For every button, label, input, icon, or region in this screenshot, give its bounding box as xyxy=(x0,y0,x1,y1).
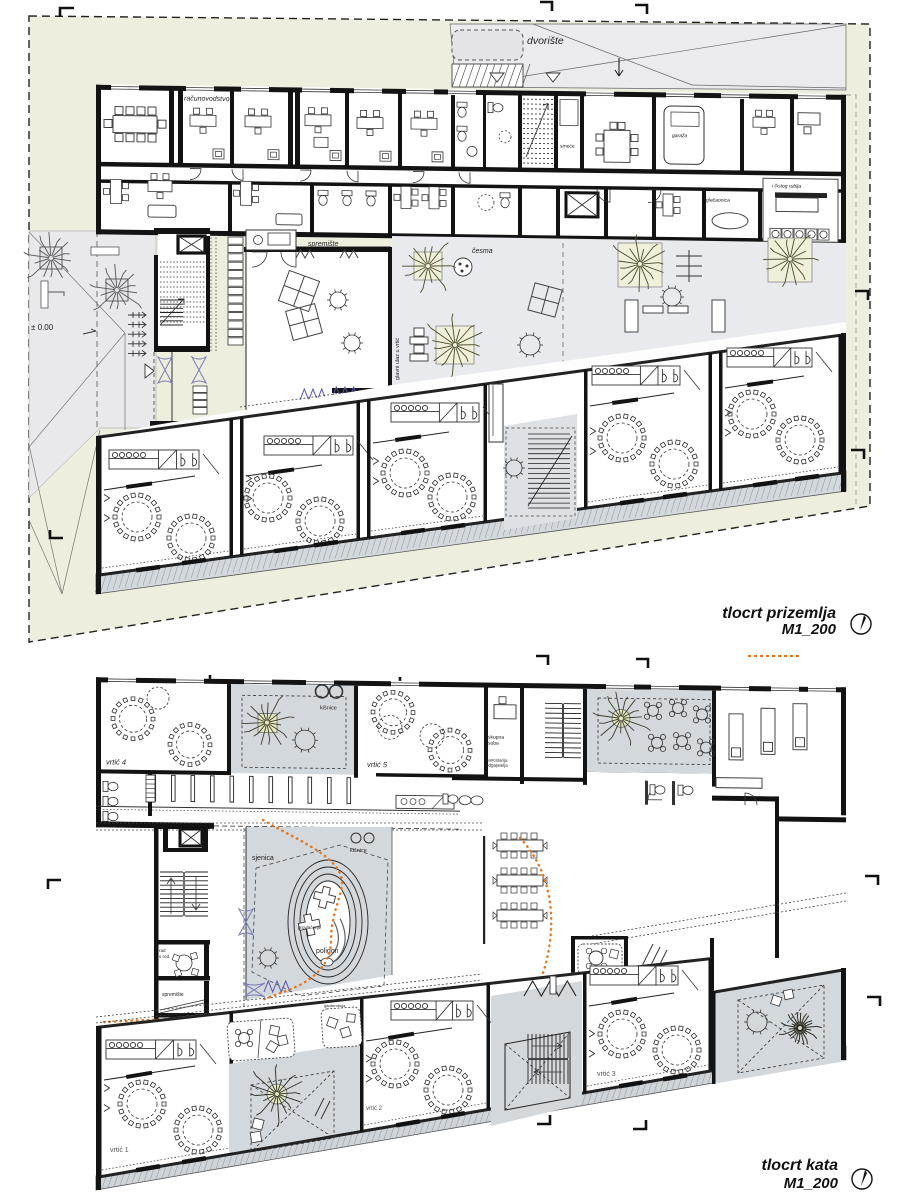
svg-text:garaža: garaža xyxy=(672,133,688,139)
svg-text:± 0.00: ± 0.00 xyxy=(31,323,54,332)
svg-text:poligon: poligon xyxy=(316,948,339,955)
svg-text:tlocrt kata: tlocrt kata xyxy=(762,1157,839,1174)
svg-text:odgajatelja: odgajatelja xyxy=(486,763,508,768)
svg-text:tlocrt prizemlja: tlocrt prizemlja xyxy=(722,605,836,622)
svg-text:spremište: spremište xyxy=(162,992,184,998)
svg-text:smeće: smeće xyxy=(560,144,575,150)
svg-text:vrtić 2: vrtić 2 xyxy=(366,1106,383,1112)
svg-text:kišnice: kišnice xyxy=(320,705,337,711)
svg-text:vrtić 1: vrtić 1 xyxy=(110,1147,129,1154)
svg-text:M1_200: M1_200 xyxy=(782,621,837,638)
svg-text:sjenica: sjenica xyxy=(252,855,274,862)
svg-text:M1_200: M1_200 xyxy=(784,1175,839,1192)
svg-text:rad: rad xyxy=(159,948,166,953)
svg-text:glačaonica: glačaonica xyxy=(706,197,730,203)
svg-text:česma: česma xyxy=(472,248,493,255)
svg-text:s rod.: s rod. xyxy=(159,954,170,959)
svg-text:garderobnja: garderobnja xyxy=(324,1003,346,1008)
svg-text:provlačenje: provlačenje xyxy=(298,925,322,930)
svg-text:soba: soba xyxy=(488,741,499,747)
svg-text:vrtić 4: vrtić 4 xyxy=(106,757,126,766)
svg-text:i čistog rublja: i čistog rublja xyxy=(772,183,801,189)
svg-text:vrtić 3: vrtić 3 xyxy=(597,1071,616,1078)
svg-text:vrtić 5: vrtić 5 xyxy=(367,760,388,769)
svg-text:spremište: spremište xyxy=(308,241,338,248)
svg-text:računovodstvo: računovodstvo xyxy=(184,95,230,103)
svg-text:dvorište: dvorište xyxy=(527,35,564,47)
svg-text:glavni ulaz u vrtić: glavni ulaz u vrtić xyxy=(395,338,401,380)
